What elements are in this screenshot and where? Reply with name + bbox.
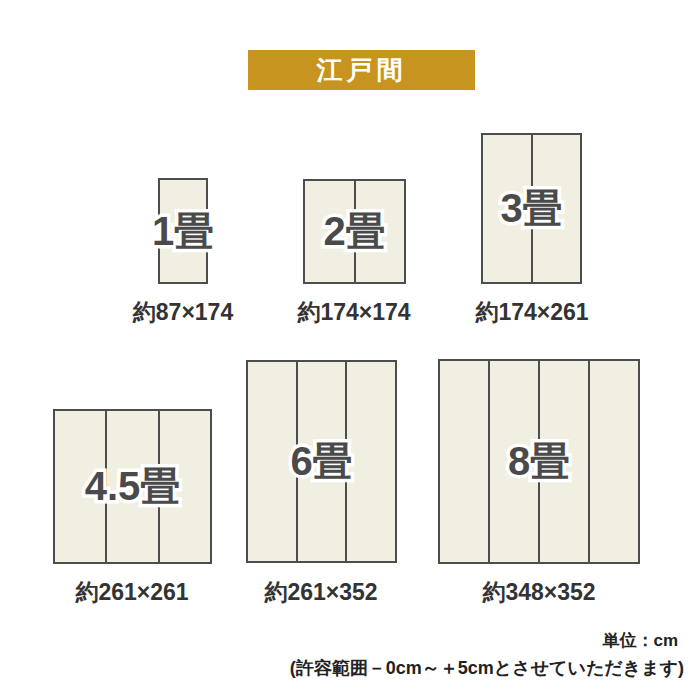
dimension-label-3tatami: 約174×261 — [432, 297, 632, 328]
mat-diagram-4half-tatami: 4.5畳 — [53, 409, 212, 564]
mat-diagram-6tatami: 6畳 — [246, 360, 397, 563]
dimension-label-8tatami: 約348×352 — [439, 577, 639, 608]
dimension-label-1tatami: 約87×174 — [83, 297, 283, 328]
mat-diagram-3tatami: 3畳 — [481, 133, 582, 284]
mat-size-label: 3畳 — [483, 135, 580, 282]
mat-size-label: 8畳 — [440, 361, 638, 562]
dimension-label-6tatami: 約261×352 — [221, 577, 421, 608]
tolerance-note: (許容範囲－0cm～＋5cmとさせていただきます) — [290, 656, 684, 680]
mat-size-label: 2畳 — [305, 181, 404, 282]
mat-diagram-1tatami: 1畳 — [158, 178, 208, 284]
mat-diagram-8tatami: 8畳 — [438, 359, 640, 564]
mat-size-label: 1畳 — [160, 180, 206, 282]
dimension-label-2tatami: 約174×174 — [254, 297, 454, 328]
dimension-label-4half-tatami: 約261×261 — [32, 577, 232, 608]
mat-size-label: 6畳 — [248, 362, 395, 561]
unit-label: 単位：cm — [602, 629, 678, 652]
mat-size-label: 4.5畳 — [55, 411, 210, 562]
size-category-badge: 江戸間 — [248, 50, 475, 90]
mat-diagram-2tatami: 2畳 — [303, 179, 406, 284]
tatami-size-chart: 江戸間 1畳 約87×174 2畳 約174×174 3畳 約174×261 4… — [0, 0, 700, 700]
size-category-label: 江戸間 — [317, 53, 407, 88]
